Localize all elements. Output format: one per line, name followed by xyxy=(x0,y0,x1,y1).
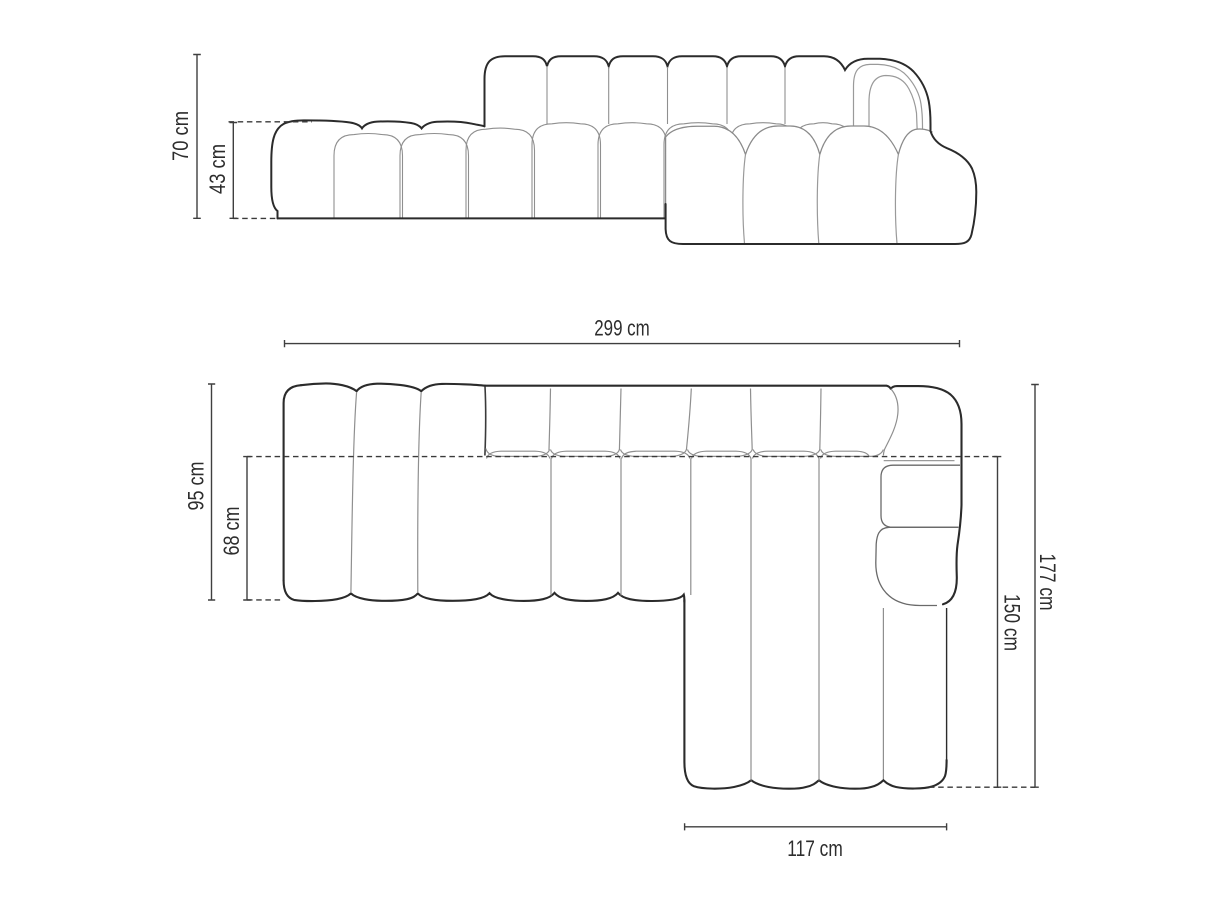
svg-text:70 cm: 70 cm xyxy=(168,111,193,161)
svg-text:95 cm: 95 cm xyxy=(184,462,209,511)
svg-text:68 cm: 68 cm xyxy=(219,507,244,556)
svg-text:150 cm: 150 cm xyxy=(1000,594,1025,651)
svg-text:43 cm: 43 cm xyxy=(205,144,230,194)
svg-text:177 cm: 177 cm xyxy=(1035,554,1060,611)
svg-text:117 cm: 117 cm xyxy=(787,836,843,861)
svg-text:299 cm: 299 cm xyxy=(594,316,650,341)
